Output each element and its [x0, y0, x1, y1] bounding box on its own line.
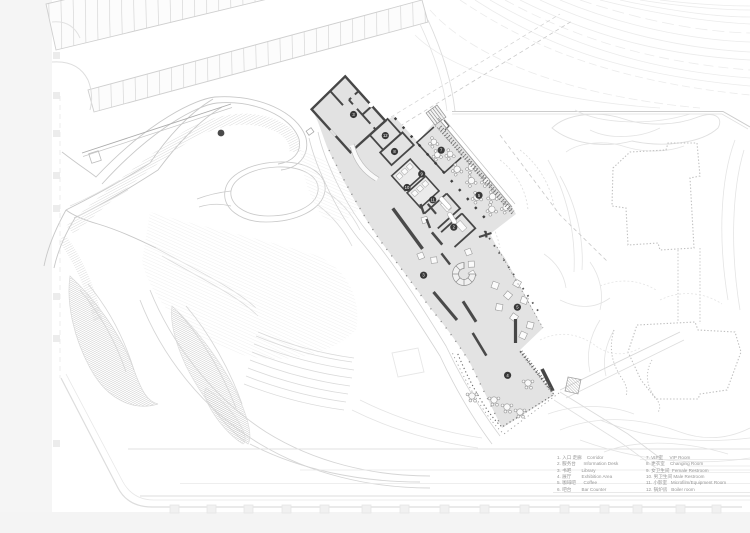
- svg-text:11: 11: [431, 197, 436, 202]
- svg-text:12: 12: [383, 133, 388, 138]
- svg-text:10: 10: [405, 185, 410, 190]
